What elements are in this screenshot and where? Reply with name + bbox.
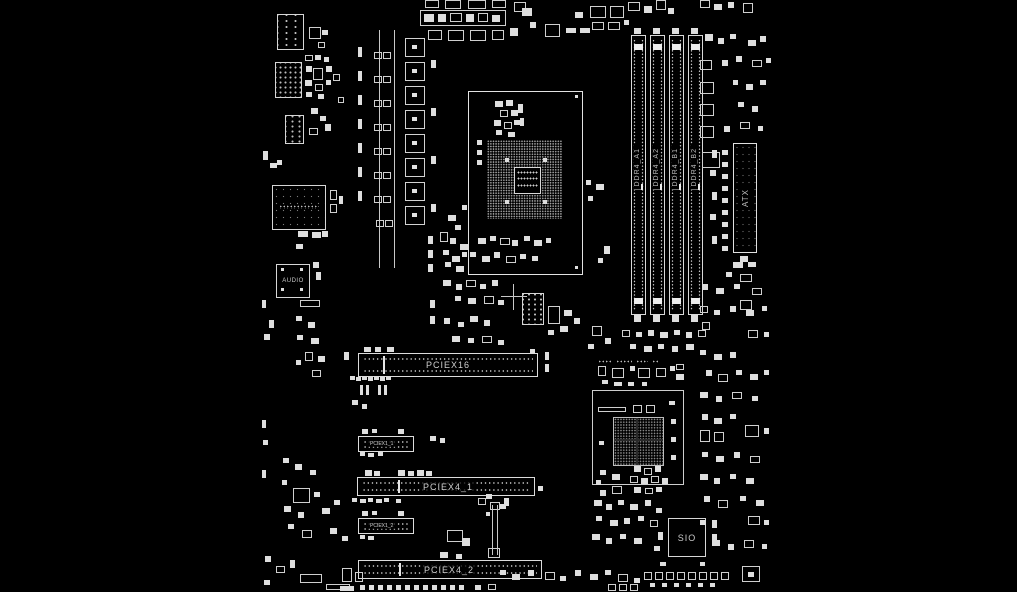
component-pad xyxy=(264,334,270,340)
component-pad xyxy=(736,370,742,375)
pciex4-2-label: PCIEX4_2 xyxy=(421,565,477,575)
component-pad xyxy=(733,80,738,85)
component-pad xyxy=(700,350,706,355)
component-pad xyxy=(298,512,304,518)
component-pad xyxy=(722,174,728,179)
cpu-center-pads xyxy=(514,167,541,194)
component-pad xyxy=(500,110,508,117)
component-pad xyxy=(714,432,724,442)
component-pad xyxy=(618,500,624,505)
chipset-pad xyxy=(599,441,604,445)
component-pad xyxy=(296,316,302,321)
component-pad xyxy=(734,284,740,289)
component-pad xyxy=(426,471,432,476)
pciex1-1-slot[interactable]: PCIEX1_1 xyxy=(358,436,414,452)
component-pad xyxy=(431,60,436,68)
component-pad xyxy=(431,204,436,212)
component-pad xyxy=(470,316,478,322)
pciex1-2-slot[interactable]: PCIEX1_2 xyxy=(358,518,414,534)
pciex4-1-label: PCIEX4_1 xyxy=(420,482,476,492)
component-pad xyxy=(492,0,506,8)
component-pad xyxy=(618,574,628,582)
component-pad xyxy=(302,530,312,538)
component-pad xyxy=(398,429,404,434)
component-pad xyxy=(477,150,482,155)
component-pad xyxy=(296,360,301,365)
component-pad xyxy=(698,583,703,587)
component-pad xyxy=(443,250,449,255)
component-pad xyxy=(674,330,680,335)
component-pad xyxy=(658,532,663,540)
component-pad xyxy=(610,520,618,526)
component-pad xyxy=(662,478,668,484)
component-pad xyxy=(764,332,769,337)
component-pad xyxy=(721,572,729,580)
component-pad xyxy=(500,238,510,245)
component-pad xyxy=(608,22,620,30)
component-pad xyxy=(740,122,750,129)
cpu-socket[interactable] xyxy=(468,91,583,275)
component-pad xyxy=(750,374,758,380)
component-pad xyxy=(634,28,641,34)
vrm-choke[interactable] xyxy=(405,158,425,177)
component-pad xyxy=(496,130,502,135)
component-pad xyxy=(326,80,331,85)
component-pad xyxy=(704,496,710,502)
component-pad xyxy=(538,486,543,491)
component-pad xyxy=(300,574,322,583)
component-pad xyxy=(545,364,549,372)
component-pad xyxy=(498,340,504,345)
chipset-pad xyxy=(646,405,655,413)
chipset-pad xyxy=(671,455,676,460)
component-pad xyxy=(342,568,352,582)
component-pad xyxy=(358,47,362,57)
dimm-key xyxy=(672,44,681,50)
lan-controller-chip[interactable] xyxy=(272,185,326,230)
component-pad xyxy=(385,220,393,227)
dimm-slot-ddr4-b1[interactable]: DDR4_B1 xyxy=(669,35,684,315)
component-pad xyxy=(448,30,464,41)
vrm-choke[interactable] xyxy=(405,206,425,225)
component-pad xyxy=(714,418,722,424)
component-pad xyxy=(276,566,285,573)
component-pad xyxy=(405,585,410,590)
component-pad xyxy=(616,360,632,363)
atx-power-connector[interactable]: ATX xyxy=(733,143,757,253)
dimm-label: DDR4_B1 xyxy=(672,145,679,190)
component-pad xyxy=(394,30,395,242)
component-pad xyxy=(342,536,348,541)
component-pad xyxy=(431,108,436,116)
component-pad xyxy=(612,474,620,480)
component-pad xyxy=(441,585,446,590)
component-pad xyxy=(383,148,391,155)
component-pad xyxy=(605,338,611,344)
component-pad xyxy=(518,104,523,113)
component-pad xyxy=(470,30,486,41)
component-pad xyxy=(318,94,324,99)
component-pad xyxy=(575,12,583,18)
component-pad xyxy=(746,310,754,316)
component-pad xyxy=(712,534,717,542)
component-pad xyxy=(650,583,655,587)
component-pad xyxy=(700,0,710,8)
component-pad xyxy=(638,368,650,378)
dimm-slot-ddr4-a1[interactable]: DDR4_A1 xyxy=(631,35,646,315)
component-pad xyxy=(702,284,708,290)
component-pad xyxy=(283,458,289,463)
component-pad xyxy=(431,156,436,164)
component-pad xyxy=(700,82,714,94)
component-pad xyxy=(592,534,600,540)
dimm-key xyxy=(691,298,700,304)
component-pad xyxy=(700,474,708,480)
component-pad xyxy=(297,335,303,340)
component-pad xyxy=(638,516,644,521)
component-pad xyxy=(379,30,380,242)
component-pad xyxy=(718,500,728,508)
component-pad xyxy=(362,404,367,409)
component-pad xyxy=(312,232,321,238)
component-pad xyxy=(504,498,509,506)
component-pad xyxy=(752,106,758,112)
component-pad xyxy=(495,101,503,107)
component-pad xyxy=(428,236,433,244)
component-pad xyxy=(545,24,560,37)
component-pad xyxy=(592,22,604,30)
component-pad xyxy=(722,234,728,239)
component-pad xyxy=(612,486,622,494)
component-pad xyxy=(645,488,653,494)
component-pad xyxy=(630,584,638,591)
component-pad xyxy=(396,499,401,503)
component-pad xyxy=(478,498,486,505)
component-pad xyxy=(492,30,504,40)
component-pad xyxy=(269,320,274,328)
component-pad xyxy=(330,190,337,200)
component-pad xyxy=(530,349,535,353)
component-pad xyxy=(656,368,666,377)
component-pad xyxy=(322,231,328,237)
component-pad xyxy=(624,20,629,25)
pciex16-label: PCIEX16 xyxy=(423,360,473,370)
component-pad xyxy=(263,440,268,445)
component-pad xyxy=(358,95,362,105)
component-pad xyxy=(318,42,325,48)
component-pad xyxy=(428,30,442,40)
component-pad xyxy=(355,572,363,582)
component-pad xyxy=(423,585,428,590)
component-pad xyxy=(666,572,674,580)
component-pad xyxy=(560,576,566,581)
dimm-label: DDR4_A2 xyxy=(653,145,660,190)
component-pad xyxy=(758,126,763,131)
component-pad xyxy=(468,338,474,343)
component-pad xyxy=(322,30,328,35)
component-pad xyxy=(314,492,320,497)
component-pad xyxy=(740,496,746,501)
component-pad xyxy=(730,414,736,419)
component-pad xyxy=(394,242,395,268)
component-pad xyxy=(730,352,736,358)
vrm-choke[interactable] xyxy=(405,110,425,129)
component-pad xyxy=(698,330,706,337)
component-pad xyxy=(284,506,291,512)
component-pad xyxy=(605,570,611,575)
component-pad xyxy=(588,196,593,201)
component-pad xyxy=(641,478,648,484)
component-pad xyxy=(656,487,662,492)
component-pad xyxy=(636,332,642,337)
component-pad xyxy=(652,360,660,363)
component-pad xyxy=(428,264,433,272)
component-pad xyxy=(580,28,590,33)
component-pad xyxy=(430,300,435,308)
component-pad xyxy=(322,508,330,514)
component-pad xyxy=(700,104,714,116)
component-pad xyxy=(281,268,284,271)
component-pad xyxy=(366,385,369,395)
component-pad xyxy=(296,244,303,249)
component-pad xyxy=(702,452,708,457)
component-pad xyxy=(466,14,474,22)
component-pad xyxy=(590,574,598,580)
component-pad xyxy=(311,338,319,344)
component-pad xyxy=(660,562,666,566)
component-pad xyxy=(486,512,490,516)
component-pad xyxy=(374,124,382,131)
component-pad xyxy=(313,262,319,268)
component-pad xyxy=(360,452,365,456)
component-pad xyxy=(610,6,624,18)
dimm-key xyxy=(653,44,662,50)
component-pad xyxy=(512,240,518,246)
component-pad xyxy=(672,315,679,322)
component-pad xyxy=(398,470,405,476)
component-pad xyxy=(650,520,658,527)
chipset-pad xyxy=(671,419,676,424)
component-pad xyxy=(606,538,612,544)
component-pad xyxy=(340,586,354,591)
slot-key-notch xyxy=(399,563,401,576)
component-pad xyxy=(756,500,764,506)
component-pad xyxy=(339,196,343,204)
component-pad xyxy=(311,108,318,114)
component-pad xyxy=(452,336,460,342)
component-pad xyxy=(444,318,450,324)
component-pad xyxy=(488,548,500,558)
component-pad xyxy=(383,172,391,179)
component-pad xyxy=(506,100,513,106)
component-pad xyxy=(752,396,758,401)
component-pad xyxy=(602,380,608,384)
component-pad xyxy=(364,347,371,352)
component-pad xyxy=(668,8,674,14)
component-pad xyxy=(630,476,638,483)
component-pad xyxy=(722,222,728,227)
pciex1-1-label: PCIEX1_1 xyxy=(367,441,396,447)
component-pad xyxy=(548,306,560,324)
vrm-choke[interactable] xyxy=(405,38,425,57)
m2-mount-header[interactable] xyxy=(522,293,544,325)
component-pad xyxy=(630,344,636,349)
component-pad xyxy=(712,520,717,528)
component-pad xyxy=(450,585,455,590)
component-pad xyxy=(477,160,482,165)
component-pad xyxy=(596,184,604,190)
vrm-choke[interactable] xyxy=(405,62,425,81)
component-pad xyxy=(644,6,652,13)
component-pad xyxy=(430,436,436,441)
component-pad xyxy=(508,132,515,137)
component-pad xyxy=(653,28,660,34)
component-pad xyxy=(264,580,270,585)
component-pad xyxy=(688,572,696,580)
component-pad xyxy=(543,200,547,204)
component-pad xyxy=(490,236,496,241)
component-pad xyxy=(730,474,736,479)
io-controller-chip[interactable] xyxy=(275,62,302,98)
component-pad xyxy=(674,583,679,587)
component-pad xyxy=(728,544,734,550)
component-pad xyxy=(478,13,488,22)
component-pad xyxy=(352,400,358,405)
component-pad xyxy=(262,300,266,308)
component-pad xyxy=(387,347,394,352)
component-pad xyxy=(443,280,451,286)
component-pad xyxy=(522,8,532,16)
component-pad xyxy=(358,167,362,177)
component-pad xyxy=(760,36,766,42)
component-pad xyxy=(505,200,509,204)
component-pad xyxy=(438,14,446,22)
component-pad xyxy=(455,296,461,301)
component-pad xyxy=(530,22,536,28)
component-pad xyxy=(480,284,486,289)
component-pad xyxy=(300,300,320,307)
component-pad xyxy=(305,352,313,361)
component-pad xyxy=(358,71,362,81)
component-pad xyxy=(448,215,456,221)
component-pad xyxy=(628,382,634,386)
vrm-choke[interactable] xyxy=(405,134,425,153)
component-pad xyxy=(748,572,754,577)
component-pad xyxy=(606,504,612,510)
component-pad xyxy=(596,480,601,485)
component-pad xyxy=(368,536,374,540)
vrm-choke[interactable] xyxy=(405,182,425,201)
component-pad xyxy=(670,366,675,371)
component-pad xyxy=(734,452,740,458)
component-pad xyxy=(372,511,377,515)
component-pad xyxy=(468,0,486,9)
component-pad xyxy=(604,246,610,254)
dimm-slot-ddr4-a2[interactable]: DDR4_A2 xyxy=(650,35,665,315)
component-pad xyxy=(378,585,383,590)
chipset-pad xyxy=(633,405,642,413)
component-pad xyxy=(450,238,456,244)
component-pad xyxy=(506,256,516,263)
dimm-slot-ddr4-b2[interactable]: DDR4_B2 xyxy=(688,35,703,315)
component-pad xyxy=(740,274,752,282)
sio-label: SIO xyxy=(678,533,697,543)
pciex4-1-slot[interactable]: PCIEX4_1 xyxy=(357,477,535,496)
dimm-key xyxy=(653,298,662,304)
component-pad xyxy=(598,360,612,363)
dimm-key xyxy=(634,298,643,304)
component-pad xyxy=(718,38,724,44)
component-pad xyxy=(622,330,630,337)
component-pad xyxy=(722,150,728,155)
component-pad xyxy=(700,60,712,70)
component-pad xyxy=(634,578,640,583)
component-pad xyxy=(358,143,362,153)
component-pad xyxy=(724,126,730,132)
component-pad xyxy=(408,471,414,476)
component-pad xyxy=(764,370,769,375)
component-pad xyxy=(752,288,762,295)
pin-header[interactable] xyxy=(285,115,304,144)
component-pad xyxy=(374,471,380,476)
dimm-pins xyxy=(641,39,644,311)
component-pad xyxy=(513,284,514,310)
pciex16-slot[interactable]: PCIEX16 xyxy=(358,353,538,377)
component-pad xyxy=(699,572,707,580)
component-pad xyxy=(484,320,490,326)
component-pad xyxy=(387,585,392,590)
component-pad xyxy=(760,80,766,85)
component-pad xyxy=(662,583,667,587)
component-pad xyxy=(362,376,367,380)
component-pad xyxy=(383,196,391,203)
component-pad xyxy=(722,60,728,66)
component-pad xyxy=(282,480,287,485)
component-pad xyxy=(714,310,720,315)
component-pad xyxy=(644,468,652,475)
component-pad xyxy=(620,534,626,539)
component-pad xyxy=(716,456,724,462)
component-pad xyxy=(746,84,753,90)
component-pad xyxy=(764,520,769,525)
usb-header[interactable] xyxy=(277,14,304,50)
component-pad xyxy=(430,316,435,324)
component-pad xyxy=(277,160,282,165)
component-pad xyxy=(475,585,481,590)
component-pad xyxy=(368,377,373,381)
component-pad xyxy=(263,151,268,160)
component-pad xyxy=(600,470,606,475)
chipset-pad xyxy=(669,401,675,405)
component-pad xyxy=(660,332,668,338)
component-pad xyxy=(315,55,321,60)
component-pad xyxy=(379,242,380,268)
component-pad xyxy=(702,322,710,330)
component-pad xyxy=(288,524,294,529)
component-pad xyxy=(310,470,316,475)
component-pad xyxy=(374,376,379,380)
component-pad xyxy=(445,0,461,9)
component-pad xyxy=(716,396,722,402)
component-pad xyxy=(743,3,753,13)
component-pad xyxy=(722,198,728,203)
component-pad xyxy=(360,535,365,539)
component-pad xyxy=(510,28,518,36)
boardview-canvas[interactable]: DDR4_A1 DDR4_A2 DDR4_B1 DDR4_B2 ATX PCIE… xyxy=(0,0,1017,592)
vrm-choke[interactable] xyxy=(405,86,425,105)
component-pad xyxy=(560,326,568,332)
component-pad xyxy=(326,66,332,72)
